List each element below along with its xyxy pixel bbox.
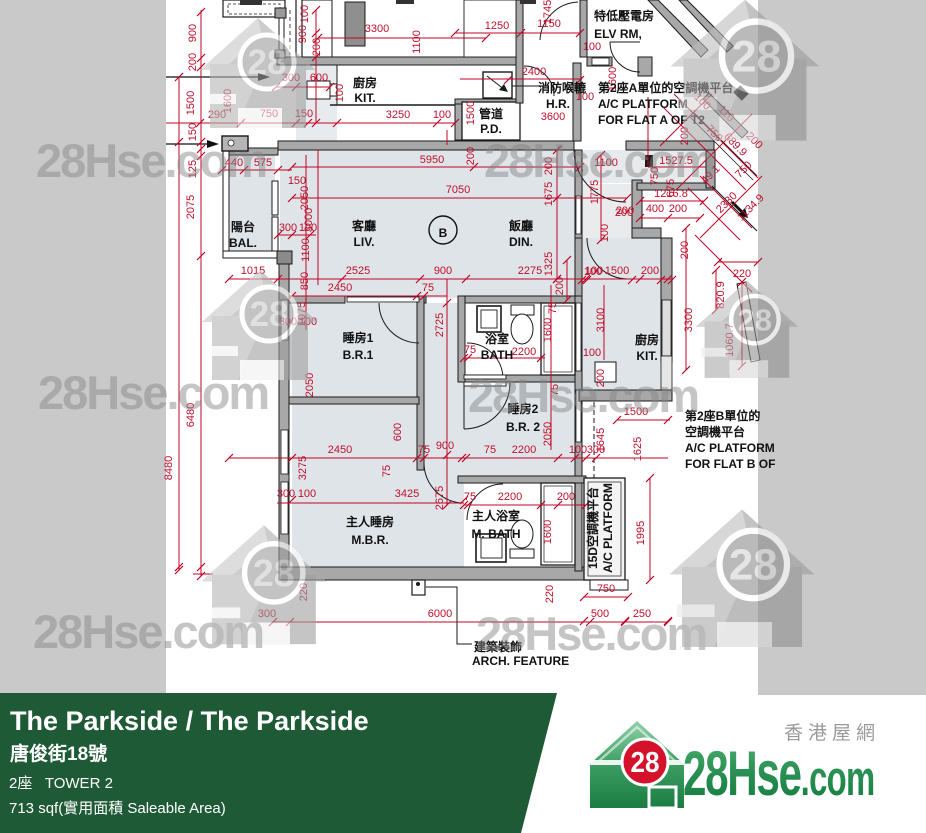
svg-text:2275: 2275 <box>518 265 542 277</box>
svg-text:2050: 2050 <box>299 186 311 210</box>
svg-text:BAL.: BAL. <box>229 236 257 250</box>
svg-text:1600: 1600 <box>542 318 554 342</box>
svg-text:200: 200 <box>669 203 687 215</box>
svg-text:28: 28 <box>630 746 659 779</box>
svg-text:1995: 1995 <box>635 521 647 545</box>
svg-text:M.B.R.: M.B.R. <box>351 533 388 547</box>
svg-text:200: 200 <box>679 241 691 259</box>
svg-text:2450: 2450 <box>328 444 352 456</box>
svg-text:100: 100 <box>433 109 451 121</box>
svg-text:1745: 1745 <box>542 0 554 24</box>
svg-text:900: 900 <box>436 440 454 452</box>
svg-text:400: 400 <box>646 203 664 215</box>
svg-text:200: 200 <box>465 147 477 165</box>
svg-text:唐俊街18號: 唐俊街18號 <box>10 742 107 765</box>
svg-text:300: 300 <box>279 222 297 234</box>
svg-text:75: 75 <box>418 444 430 456</box>
svg-text:1500: 1500 <box>605 265 629 277</box>
svg-text:100: 100 <box>569 444 587 456</box>
svg-text:100: 100 <box>599 224 611 242</box>
svg-text:管道: 管道 <box>479 106 503 121</box>
svg-text:香港屋網: 香港屋網 <box>784 722 880 744</box>
svg-text:3425: 3425 <box>395 488 419 500</box>
svg-text:2450: 2450 <box>328 282 352 294</box>
svg-text:KIT.: KIT. <box>636 349 657 363</box>
svg-text:廚房: 廚房 <box>635 332 659 347</box>
svg-text:ELV RM,: ELV RM, <box>594 27 642 41</box>
svg-text:3300: 3300 <box>365 23 389 35</box>
svg-text:1500: 1500 <box>465 101 477 125</box>
svg-text:FOR FLAT B OF: FOR FLAT B OF <box>685 457 775 471</box>
svg-text:2675: 2675 <box>434 486 446 510</box>
svg-text:2200: 2200 <box>512 346 536 358</box>
svg-text:900: 900 <box>297 25 309 43</box>
svg-text:75: 75 <box>464 491 476 503</box>
svg-text:7050: 7050 <box>446 184 470 196</box>
svg-text:200: 200 <box>187 53 199 71</box>
svg-text:睡房1: 睡房1 <box>343 330 374 345</box>
svg-text:220: 220 <box>733 268 751 280</box>
svg-text:200: 200 <box>557 491 575 503</box>
svg-text:713 sqf(實用面積 Saleable Area): 713 sqf(實用面積 Saleable Area) <box>9 799 226 817</box>
svg-text:LIV.: LIV. <box>354 235 375 249</box>
svg-text:1216.8: 1216.8 <box>654 188 688 200</box>
svg-text:空調機平台: 空調機平台 <box>685 424 745 439</box>
svg-text:2075: 2075 <box>185 195 197 219</box>
svg-text:廚房: 廚房 <box>353 75 377 90</box>
svg-text:200: 200 <box>554 277 566 295</box>
svg-text:75: 75 <box>547 302 559 314</box>
svg-text:200: 200 <box>311 38 323 56</box>
svg-text:8480: 8480 <box>163 456 175 480</box>
svg-text:2725: 2725 <box>434 313 446 337</box>
svg-text:The Parkside / The Parkside: The Parkside / The Parkside <box>10 706 369 736</box>
svg-text:850: 850 <box>299 272 311 290</box>
svg-text:2200: 2200 <box>512 444 536 456</box>
svg-text:75: 75 <box>381 465 393 477</box>
svg-text:100: 100 <box>584 266 602 278</box>
svg-text:100: 100 <box>583 347 601 359</box>
svg-text:600: 600 <box>392 423 404 441</box>
svg-text:1325: 1325 <box>543 252 555 276</box>
svg-text:900: 900 <box>434 265 452 277</box>
svg-text:6000: 6000 <box>428 608 452 620</box>
svg-text:消防喉轆: 消防喉轆 <box>538 80 586 95</box>
svg-text:1250: 1250 <box>485 20 509 32</box>
svg-text:1100: 1100 <box>411 30 423 54</box>
svg-text:陽台: 陽台 <box>231 219 255 234</box>
svg-text:200: 200 <box>616 205 634 217</box>
svg-text:28Hse.com: 28Hse.com <box>33 605 263 658</box>
svg-text:150: 150 <box>288 175 306 187</box>
svg-text:15D空調機平台: 15D空調機平台 <box>585 487 600 569</box>
svg-text:300: 300 <box>277 488 295 500</box>
svg-text:1625: 1625 <box>632 437 644 461</box>
svg-text:2200: 2200 <box>498 491 522 503</box>
svg-text:220: 220 <box>544 585 556 603</box>
svg-text:100: 100 <box>334 84 346 102</box>
svg-text:3300: 3300 <box>683 308 695 332</box>
svg-text:3250: 3250 <box>386 109 410 121</box>
svg-text:3000: 3000 <box>303 208 315 232</box>
svg-text:600: 600 <box>310 72 328 84</box>
svg-text:KIT.: KIT. <box>354 91 375 105</box>
svg-text:100: 100 <box>583 41 601 53</box>
svg-text:B.R. 2: B.R. 2 <box>506 420 540 434</box>
svg-text:B.R.1: B.R.1 <box>343 348 374 362</box>
svg-text:100: 100 <box>298 488 316 500</box>
svg-text:28Hse.com: 28Hse.com <box>468 369 698 422</box>
svg-text:2400: 2400 <box>522 66 546 78</box>
svg-text:28Hse.com: 28Hse.com <box>38 366 268 419</box>
svg-text:B: B <box>439 226 448 240</box>
svg-text:3275: 3275 <box>297 456 309 480</box>
svg-text:1645: 1645 <box>595 428 607 452</box>
svg-text:A/C PLATFORM: A/C PLATFORM <box>601 483 615 573</box>
svg-text:75: 75 <box>464 344 476 356</box>
svg-text:75: 75 <box>484 444 496 456</box>
svg-text:900: 900 <box>187 24 199 42</box>
svg-text:浴室: 浴室 <box>485 331 509 346</box>
svg-text:客廳: 客廳 <box>351 218 376 233</box>
svg-text:DIN.: DIN. <box>509 235 533 249</box>
svg-text:飯廳: 飯廳 <box>508 218 533 233</box>
svg-text:3600: 3600 <box>541 111 565 123</box>
svg-text:主人浴室: 主人浴室 <box>472 508 520 523</box>
svg-text:A/C PLATFORM: A/C PLATFORM <box>598 97 688 111</box>
svg-text:100: 100 <box>299 5 311 23</box>
svg-text:75: 75 <box>422 282 434 294</box>
svg-text:28Hse.com: 28Hse.com <box>476 607 706 660</box>
svg-text:5950: 5950 <box>420 154 444 166</box>
svg-text:3100: 3100 <box>595 308 607 332</box>
svg-text:A/C PLATFORM: A/C PLATFORM <box>685 441 775 455</box>
svg-text:主人睡房: 主人睡房 <box>346 514 394 529</box>
svg-text:200: 200 <box>641 265 659 277</box>
svg-text:1500: 1500 <box>185 91 197 115</box>
svg-text:750: 750 <box>597 583 615 595</box>
svg-text:2050: 2050 <box>542 422 554 446</box>
svg-text:H.R.: H.R. <box>546 97 570 111</box>
svg-text:M. BATH: M. BATH <box>471 527 520 541</box>
svg-text:28Hse.com: 28Hse.com <box>484 134 714 187</box>
svg-text:2座 TOWER 2: 2座 TOWER 2 <box>9 775 113 792</box>
svg-text:2525: 2525 <box>346 265 370 277</box>
svg-text:28Hse.com: 28Hse.com <box>36 134 266 187</box>
svg-text:1600: 1600 <box>542 520 554 544</box>
svg-text:特低壓電房: 特低壓電房 <box>594 8 654 23</box>
svg-text:BATH: BATH <box>481 348 513 362</box>
